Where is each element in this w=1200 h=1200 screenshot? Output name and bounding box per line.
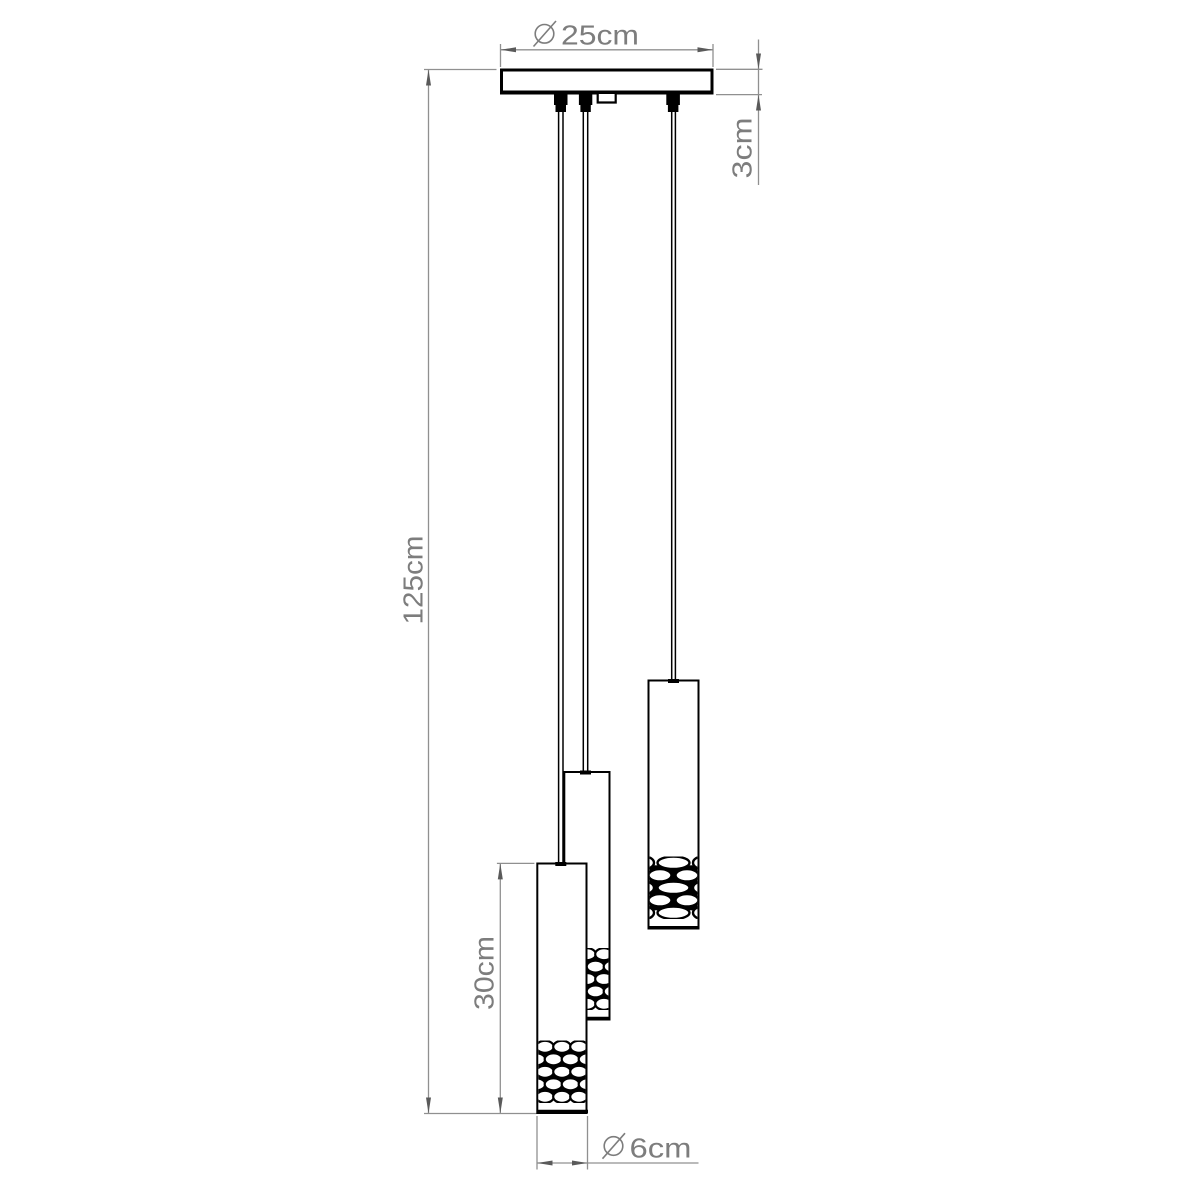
svg-text:30cm: 30cm [469,936,500,1010]
svg-text:25cm: 25cm [561,20,639,51]
svg-text:3cm: 3cm [727,118,758,179]
svg-text:6cm: 6cm [630,1133,692,1164]
svg-text:125cm: 125cm [398,536,429,625]
